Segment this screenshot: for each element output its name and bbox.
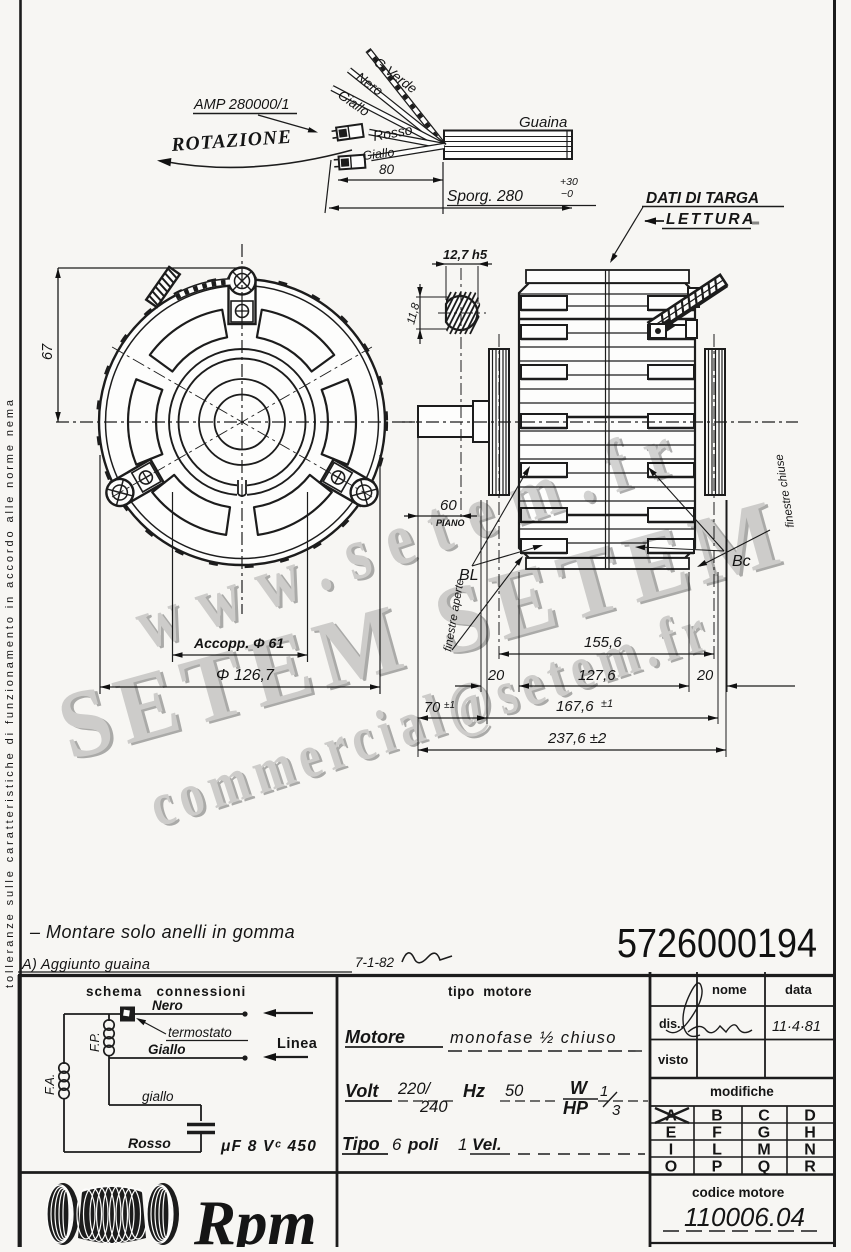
svg-text:termostato: termostato <box>168 1025 232 1040</box>
svg-text:20: 20 <box>696 668 713 684</box>
svg-text:Rpm: Rpm <box>193 1188 317 1247</box>
svg-text:giallo: giallo <box>142 1089 174 1104</box>
svg-text:Guaina: Guaina <box>519 114 567 131</box>
svg-text:μF 8 Vᶜ 450: μF 8 Vᶜ 450 <box>220 1138 317 1155</box>
svg-text:1: 1 <box>458 1135 467 1154</box>
svg-text:N: N <box>804 1142 816 1159</box>
svg-text:═: ═ <box>751 218 760 229</box>
svg-text:67: 67 <box>40 343 56 360</box>
svg-text:F: F <box>712 1125 722 1142</box>
svg-text:tolleranze sulle caratteristic: tolleranze sulle caratteristiche di funz… <box>4 397 16 988</box>
svg-text:– Montare solo anelli in gomma: – Montare solo anelli in gomma <box>29 922 295 942</box>
svg-text:Vel.: Vel. <box>472 1135 502 1154</box>
svg-text:+30: +30 <box>560 176 578 188</box>
svg-text:monofase ½ chiuso: monofase ½ chiuso <box>450 1029 617 1047</box>
svg-text:tipo motore: tipo motore <box>448 984 532 999</box>
svg-text:−0: −0 <box>561 188 573 200</box>
svg-text:Q: Q <box>758 1159 770 1176</box>
svg-text:12,7 h5: 12,7 h5 <box>443 247 488 262</box>
svg-text:Giallo: Giallo <box>148 1042 186 1057</box>
svg-text:220/: 220/ <box>397 1080 432 1098</box>
svg-text:Rosso: Rosso <box>128 1135 171 1151</box>
svg-text:L: L <box>712 1142 722 1159</box>
svg-text:5726000194: 5726000194 <box>617 920 817 966</box>
svg-text:B: B <box>711 1108 723 1125</box>
svg-text:F.A.: F.A. <box>43 1074 57 1095</box>
svg-text:modifiche: modifiche <box>710 1084 774 1099</box>
svg-text:LETTURA: LETTURA <box>666 211 756 228</box>
svg-text:E: E <box>666 1125 677 1142</box>
svg-text:poli: poli <box>407 1135 439 1154</box>
svg-text:codice motore: codice motore <box>692 1185 785 1200</box>
svg-text:F.P.: F.P. <box>88 1032 102 1052</box>
svg-text:Sporg. 280: Sporg. 280 <box>447 188 523 205</box>
svg-text:O: O <box>665 1159 677 1176</box>
svg-text:P: P <box>712 1159 723 1176</box>
svg-text:Linea: Linea <box>277 1036 318 1052</box>
svg-text:AMP 280000/1: AMP 280000/1 <box>193 97 289 113</box>
svg-text:80: 80 <box>379 162 395 177</box>
svg-text:R: R <box>804 1159 816 1176</box>
svg-text:3: 3 <box>612 1102 621 1119</box>
svg-text:schema connessioni: schema connessioni <box>86 984 246 999</box>
svg-text:M: M <box>757 1142 770 1159</box>
svg-text:11·4·81: 11·4·81 <box>772 1019 821 1035</box>
svg-text:I: I <box>669 1142 673 1159</box>
svg-text:A) Aggiunto guaina: A) Aggiunto guaina <box>21 957 150 973</box>
svg-text:visto: visto <box>658 1052 688 1067</box>
svg-text:Volt: Volt <box>345 1081 379 1101</box>
svg-text:G: G <box>758 1125 770 1142</box>
svg-text:Tipo: Tipo <box>342 1134 380 1154</box>
svg-text:237,6 ±2: 237,6 ±2 <box>547 730 607 747</box>
svg-text:H: H <box>804 1125 816 1142</box>
svg-text:Nero: Nero <box>152 998 183 1013</box>
svg-text:W: W <box>570 1078 589 1098</box>
svg-text:6: 6 <box>392 1135 402 1154</box>
svg-text:110006.04: 110006.04 <box>684 1202 805 1232</box>
svg-text:D: D <box>804 1108 816 1125</box>
svg-text:dis..: dis.. <box>659 1017 684 1031</box>
svg-text:HP: HP <box>563 1098 589 1118</box>
svg-text:Motore: Motore <box>345 1027 405 1047</box>
svg-text:Hz: Hz <box>463 1081 485 1101</box>
svg-text:7-1-82: 7-1-82 <box>355 955 395 970</box>
svg-text:C: C <box>758 1108 770 1125</box>
svg-text:nome: nome <box>712 982 747 997</box>
svg-text:DATI DI TARGA: DATI DI TARGA <box>646 190 759 207</box>
svg-text:data: data <box>785 982 813 997</box>
svg-text:1: 1 <box>600 1083 608 1100</box>
svg-text:50: 50 <box>505 1082 524 1100</box>
